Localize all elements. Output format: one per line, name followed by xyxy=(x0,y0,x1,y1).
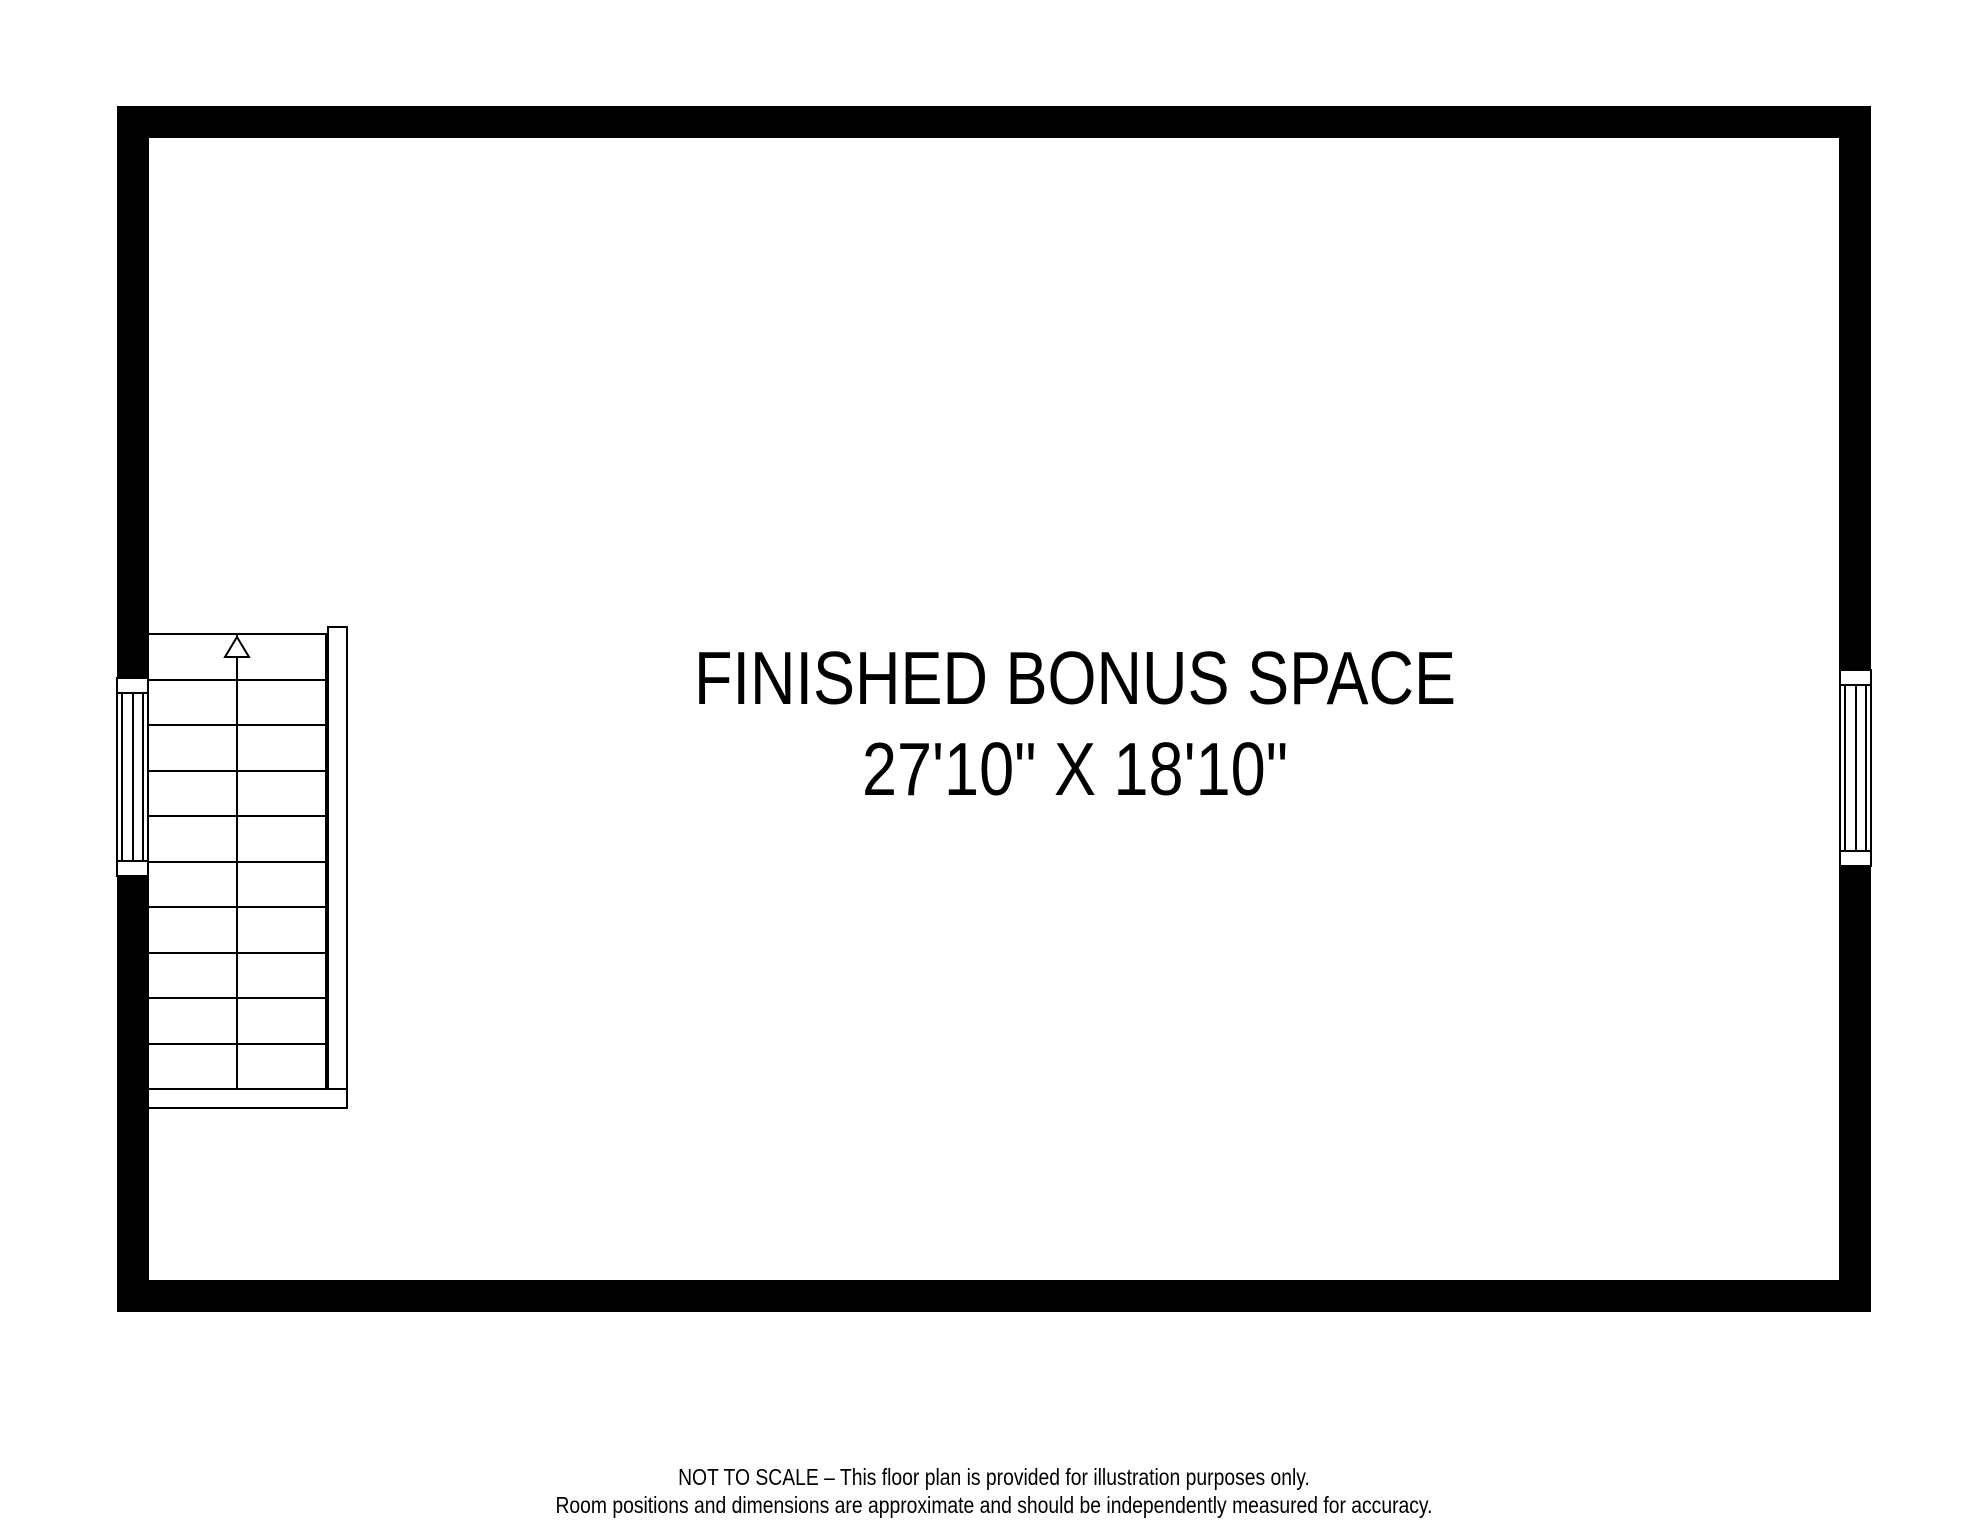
window-sill xyxy=(118,860,147,875)
floor-plan-page: FINISHED BONUS SPACE 27'10" X 18'10" NOT… xyxy=(0,0,1988,1536)
stair-direction-line xyxy=(236,635,238,1088)
stair-railing-outline-bottom xyxy=(147,1088,348,1109)
window-sill xyxy=(118,679,147,694)
room-dimensions: 27'10" X 18'10" xyxy=(403,732,1747,807)
disclaimer: NOT TO SCALE – This floor plan is provid… xyxy=(0,1463,1988,1519)
window-glass xyxy=(121,694,144,860)
window-symbol-left xyxy=(116,677,149,877)
room-label: FINISHED BONUS SPACE 27'10" X 18'10" xyxy=(275,641,1875,807)
room-name: FINISHED BONUS SPACE xyxy=(403,641,1747,716)
window-sill xyxy=(1841,850,1870,865)
disclaimer-line-2: Room positions and dimensions are approx… xyxy=(159,1491,1829,1519)
window-mullion-line xyxy=(132,694,134,860)
disclaimer-line-1: NOT TO SCALE – This floor plan is provid… xyxy=(159,1463,1829,1491)
stair-up-arrow-icon xyxy=(222,635,252,659)
